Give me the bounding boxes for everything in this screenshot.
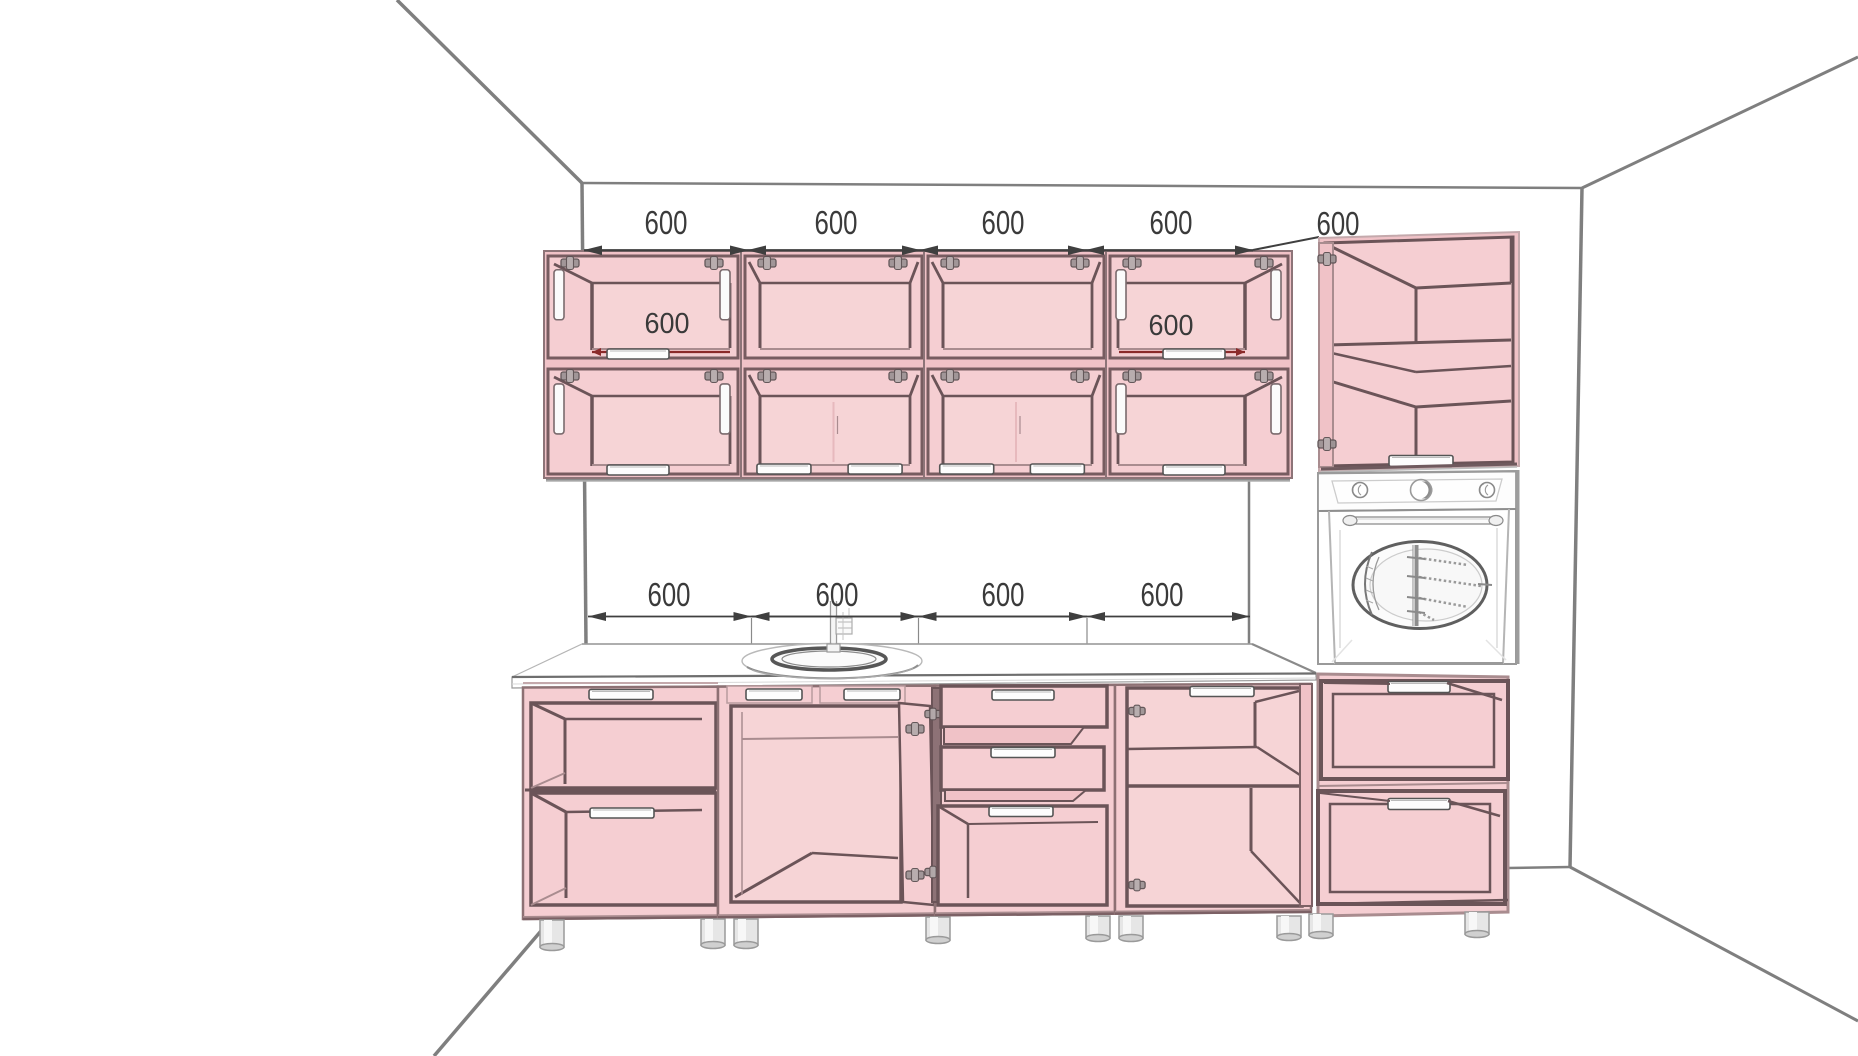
svg-text:600: 600 [1141,576,1184,613]
svg-text:600: 600 [648,576,691,613]
svg-text:600: 600 [815,204,858,241]
svg-text:600: 600 [645,308,690,340]
svg-text:600: 600 [1149,310,1194,342]
svg-text:600: 600 [1150,204,1193,241]
svg-text:600: 600 [645,204,688,241]
svg-text:600: 600 [982,576,1025,613]
svg-text:600: 600 [982,204,1025,241]
svg-text:600: 600 [816,576,859,613]
